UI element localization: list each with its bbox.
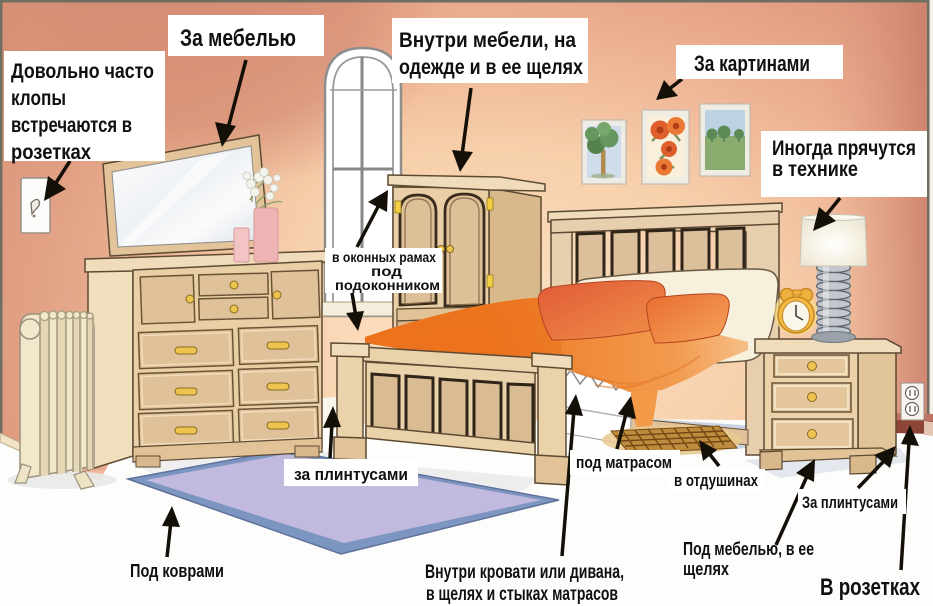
svg-text:розетках: розетках — [11, 141, 91, 164]
svg-text:Под коврами: Под коврами — [130, 561, 224, 581]
svg-text:одежде и в ее щелях: одежде и в ее щелях — [399, 56, 583, 79]
svg-text:в щелях и стыках матрасов: в щелях и стыках матрасов — [426, 584, 618, 605]
svg-text:под матрасом: под матрасом — [576, 453, 672, 472]
svg-text:в технике: в технике — [772, 158, 858, 181]
svg-text:В розетках: В розетках — [820, 574, 921, 601]
svg-text:За мебелью: За мебелью — [180, 25, 296, 52]
svg-text:За плинтусами: За плинтусами — [802, 493, 898, 512]
svg-text:За картинами: За картинами — [694, 51, 810, 76]
svg-text:встречаются в: встречаются в — [11, 114, 132, 137]
svg-text:за плинтусами: за плинтусами — [294, 465, 408, 484]
svg-text:подоконником: подоконником — [335, 277, 440, 293]
svg-text:Внутри мебели, на: Внутри мебели, на — [399, 29, 576, 52]
svg-text:клопы: клопы — [11, 87, 66, 110]
svg-text:щелях: щелях — [683, 559, 729, 579]
svg-text:Внутри кровати или дивана,: Внутри кровати или дивана, — [425, 562, 624, 583]
svg-text:Иногда прячутся: Иногда прячутся — [772, 137, 916, 160]
svg-text:Под мебелью, в ее: Под мебелью, в ее — [683, 539, 814, 559]
svg-text:Довольно часто: Довольно часто — [11, 60, 154, 83]
svg-text:в отдушинах: в отдушинах — [674, 471, 758, 490]
